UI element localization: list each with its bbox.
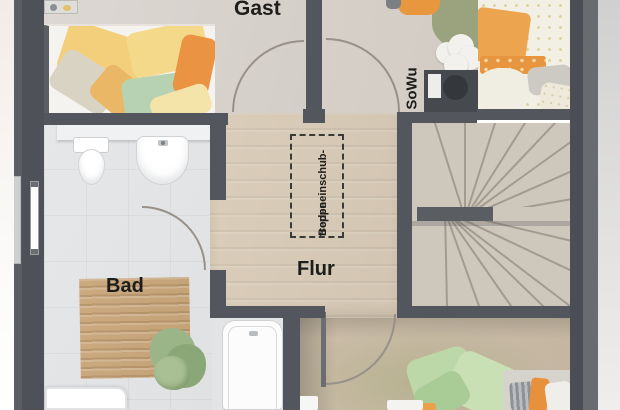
decor-item: [63, 5, 71, 11]
toilet-bowl: [78, 149, 105, 185]
pillow: [538, 81, 572, 112]
toilet: [73, 137, 109, 185]
stair-landing-rail: [417, 207, 493, 221]
furniture-edge: [298, 396, 318, 410]
staircase: [397, 113, 572, 306]
wall-bad-flur-upper: [210, 113, 226, 200]
exterior-wall-right: [570, 0, 598, 410]
outside-margin-left: [0, 0, 14, 410]
wall-stairwell-left: [397, 123, 412, 307]
decor-item: [50, 4, 57, 11]
room-label-sowu: SoWu: [392, 59, 432, 117]
nightstand: [44, 0, 78, 14]
wall-stairs-bottom-room: [397, 306, 572, 318]
attic-hatch-label-line2: treppe: [317, 202, 330, 236]
orange-cushion: [398, 0, 440, 15]
outside-margin-right: [598, 0, 620, 410]
chimney-shaft: [424, 70, 478, 115]
wall-gast-sowu-end: [303, 109, 325, 123]
wall-bad-flur-lower: [210, 270, 226, 310]
gast-bed: [40, 24, 215, 120]
wall-flur-bottom-room: [210, 306, 325, 318]
window-left: [30, 181, 39, 255]
shower-tray: [45, 387, 127, 410]
plant: [150, 328, 208, 390]
wall-gast-bad: [14, 113, 228, 125]
door-leaf-bottom-room: [321, 312, 326, 387]
plant-leaf: [154, 356, 190, 390]
room-label-gast: Gast: [234, 0, 281, 21]
wall-sowu-stairs: [477, 109, 572, 120]
pillow: [478, 68, 530, 112]
sowu-bed: [478, 0, 572, 112]
bathtub: [222, 320, 283, 410]
room-label-flur: Flur: [297, 258, 335, 281]
floor-plan: Bodeneinschub- treppe Gast Bad Flur SoWu: [0, 0, 620, 410]
gray-item: [386, 0, 401, 9]
room-label-sowu-text: SoWu: [404, 67, 421, 109]
wall-bathtub-right: [283, 315, 300, 410]
pillow: [544, 380, 572, 410]
wall-gast-sowu: [306, 0, 322, 113]
room-label-bad: Bad: [106, 275, 144, 298]
attic-hatch-label: Bodeneinschub- treppe: [291, 135, 343, 237]
door-threshold: [387, 400, 423, 410]
